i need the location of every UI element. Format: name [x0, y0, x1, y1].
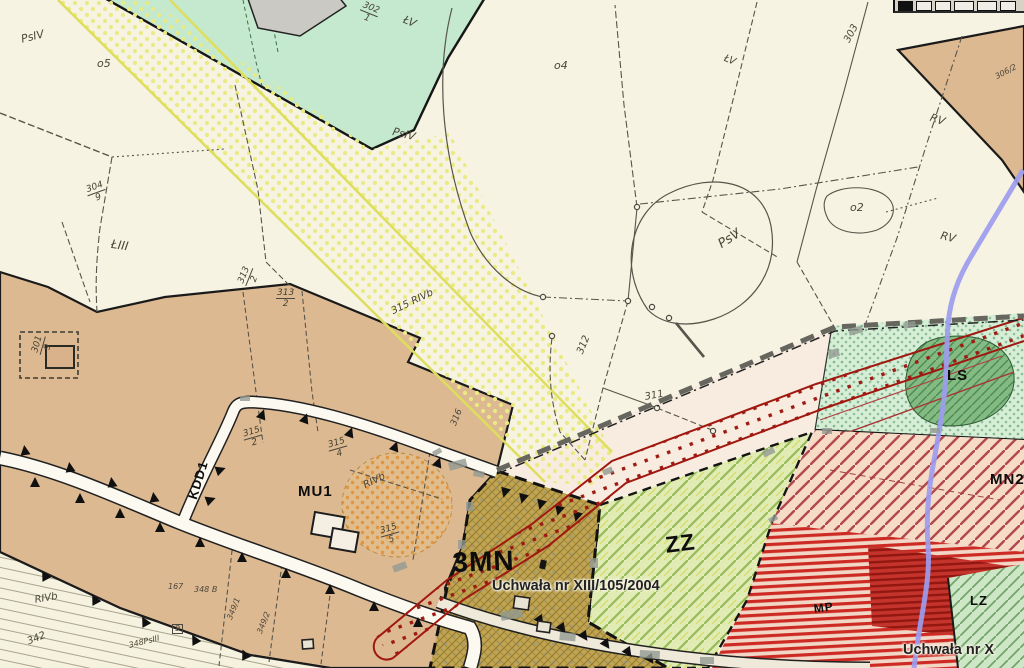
zone-label-ls: LS	[947, 368, 968, 383]
zone-label-lz: LZ	[970, 594, 988, 607]
window-toolbar-fragment	[893, 0, 1024, 13]
land-class-label: RV	[939, 230, 956, 244]
resolution-text-partial: Uchwała nr X	[903, 643, 994, 658]
toolbar-button[interactable]	[935, 1, 951, 11]
parcel-label: o4	[554, 60, 568, 71]
parcel-label: o5	[97, 58, 111, 69]
toolbar-button[interactable]	[954, 1, 974, 11]
toolbar-button[interactable]	[898, 1, 913, 11]
toolbar-button[interactable]	[977, 1, 997, 11]
zone-label-mu1: MU1	[298, 484, 333, 499]
zone-label-mp: MP	[813, 600, 834, 615]
zone-label-3mn: 3MN	[452, 547, 515, 577]
toolbar-button[interactable]	[1000, 1, 1016, 11]
parcel-fraction: 3132	[276, 288, 295, 310]
zone-label-zz: ZZ	[664, 530, 697, 556]
zoning-map-canvas: PsIV o5 ŁV PsIV o4 ŁV 303 RV o2 RV PsV Ł…	[0, 0, 1024, 668]
land-class-label: ŁIII	[110, 238, 129, 252]
parcel-label: 9	[172, 624, 183, 634]
zone-label-mn2: MN2	[990, 472, 1024, 487]
parcel-label: 167	[168, 583, 183, 591]
parcel-label: 348 B	[194, 586, 217, 594]
toolbar-button[interactable]	[916, 1, 932, 11]
resolution-text: Uchwała nr XIII/105/2004	[492, 579, 660, 594]
parcel-label: o2	[850, 202, 864, 213]
